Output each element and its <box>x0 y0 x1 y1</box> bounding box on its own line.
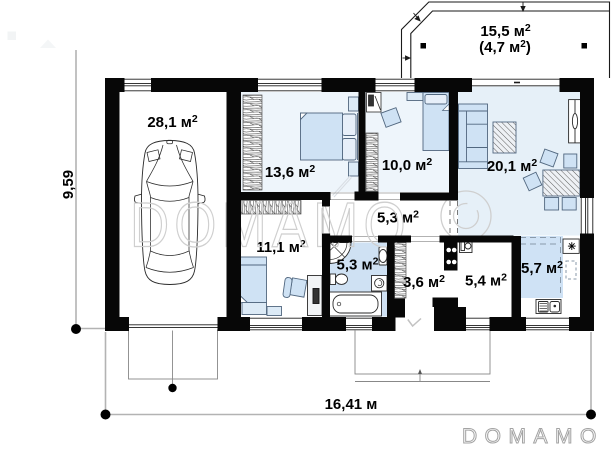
svg-text:13,6 м2: 13,6 м2 <box>265 163 315 181</box>
svg-text:3,6 м2: 3,6 м2 <box>403 273 445 291</box>
svg-text:15,5 м2: 15,5 м2 <box>480 22 530 40</box>
svg-text:16,41 м: 16,41 м <box>325 396 378 413</box>
svg-text:20,1 м2: 20,1 м2 <box>487 157 537 175</box>
svg-text:DOMAMO: DOMAMO <box>130 191 411 261</box>
svg-text:DOMAMO: DOMAMO <box>462 425 604 448</box>
svg-text:10,0 м2: 10,0 м2 <box>382 156 432 174</box>
svg-text:28,1 м2: 28,1 м2 <box>147 113 197 131</box>
svg-text:9,59: 9,59 <box>60 170 77 199</box>
svg-text:5,7 м2: 5,7 м2 <box>521 259 563 277</box>
svg-text:5,4 м2: 5,4 м2 <box>465 272 507 290</box>
